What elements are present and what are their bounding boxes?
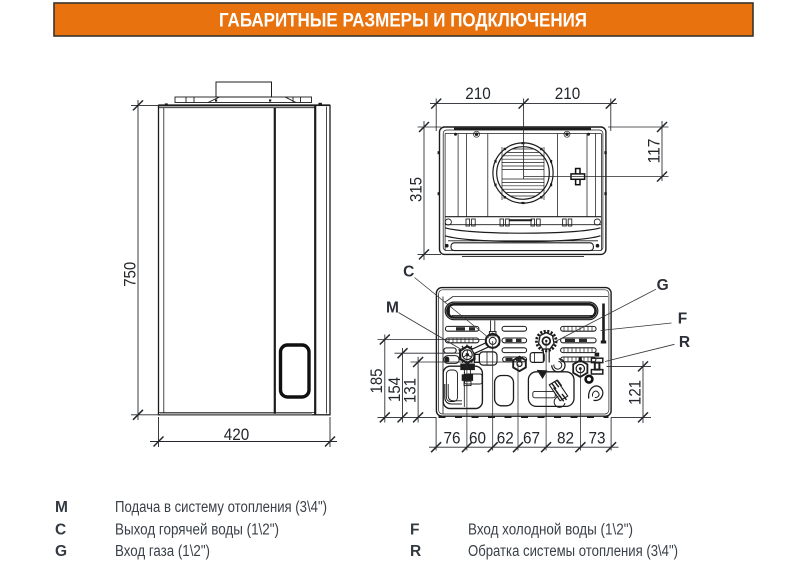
svg-text:82: 82	[557, 428, 574, 447]
svg-text:F: F	[410, 522, 419, 539]
svg-text:Вход холодной воды (1\2"): Вход холодной воды (1\2")	[468, 522, 633, 539]
svg-text:73: 73	[589, 428, 606, 447]
svg-text:117: 117	[644, 139, 663, 164]
svg-text:Вход газа (1\2"): Вход газа (1\2")	[115, 543, 210, 560]
svg-text:R: R	[410, 543, 421, 560]
svg-text:76: 76	[444, 428, 461, 447]
svg-text:60: 60	[469, 428, 486, 447]
svg-text:ГАБАРИТНЫЕ РАЗМЕРЫ И ПОДКЛЮЧЕН: ГАБАРИТНЫЕ РАЗМЕРЫ И ПОДКЛЮЧЕНИЯ	[219, 10, 587, 32]
svg-text:G: G	[55, 543, 67, 560]
svg-text:210: 210	[465, 84, 491, 103]
svg-text:R: R	[679, 334, 690, 351]
svg-text:C: C	[403, 264, 414, 281]
svg-text:131: 131	[400, 378, 419, 403]
svg-text:210: 210	[555, 84, 581, 103]
svg-text:121: 121	[625, 380, 644, 405]
svg-text:Обратка системы отопления (3\4: Обратка системы отопления (3\4")	[468, 543, 678, 560]
svg-text:G: G	[657, 277, 669, 294]
svg-text:750: 750	[120, 262, 139, 287]
svg-text:420: 420	[224, 425, 250, 444]
svg-text:F: F	[678, 311, 687, 328]
svg-text:M: M	[386, 300, 399, 317]
svg-text:315: 315	[406, 177, 425, 202]
svg-text:62: 62	[497, 428, 514, 447]
svg-text:Выход горячей воды (1\2"): Выход горячей воды (1\2")	[115, 522, 279, 539]
svg-text:185: 185	[367, 369, 386, 394]
svg-text:67: 67	[523, 428, 540, 447]
svg-text:M: M	[55, 499, 68, 516]
svg-text:Подача в систему отопления (3\: Подача в систему отопления (3\4")	[115, 499, 327, 516]
svg-text:C: C	[55, 522, 66, 539]
